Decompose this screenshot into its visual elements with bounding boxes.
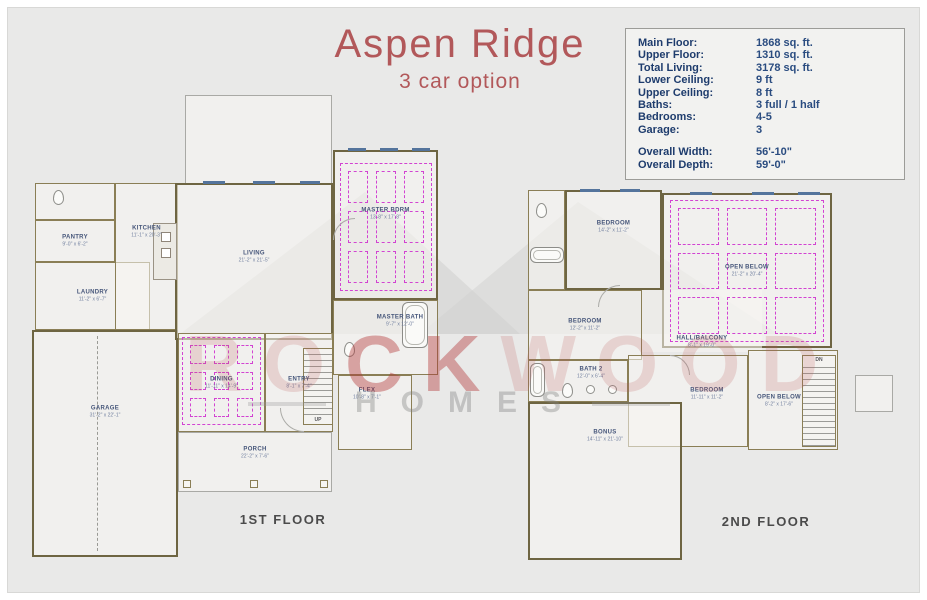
room-name: BEDROOM [597,221,630,227]
room-label: BATH 212'-0" x 6'-4" [577,367,605,380]
spec-row: Garage:3 [638,124,894,136]
ceiling-grid-cell [348,251,368,283]
ceiling-grid-cell [190,398,206,417]
room-name: BEDROOM [690,388,723,394]
floor-plan-sheet: Aspen Ridge 3 car option Main Floor:1868… [0,0,927,600]
ceiling-grid-cell [678,297,719,334]
window-marker [300,181,320,184]
spec-label: Upper Ceiling: [638,87,756,99]
spec-label: Baths: [638,99,756,111]
ceiling-grid-cell [376,171,396,203]
room-dimensions: 10'-8" x 7'-1" [353,395,381,401]
spec-label: Lower Ceiling: [638,74,756,86]
room-pantry: PANTRY9'-0" x 6'-2" [35,220,115,262]
sink-icon [586,385,595,394]
room-name: PORCH [241,447,269,453]
ceiling-grid-cell [214,398,230,417]
room-bonus: BONUS14'-11" x 21'-10" [528,402,682,560]
room-name: FLEX [353,388,381,394]
staircase: UP [303,348,333,425]
spec-value: 1868 sq. ft. [756,37,894,49]
ceiling-grid [340,163,432,291]
spec-value: 56'-10" [756,146,894,158]
spec-value: 59'-0" [756,159,894,171]
spec-value: 9 ft [756,74,894,86]
window-marker [580,189,600,192]
room-name: BEDROOM [568,319,601,325]
window-marker [380,148,398,151]
ceiling-grid-cell [727,253,768,290]
bathtub-icon [530,247,564,263]
room-label: BEDROOM12'-2" x 11'-2" [568,319,601,332]
toilet-icon [562,383,573,398]
room-label: BEDROOM14'-2" x 11'-2" [597,221,630,234]
spec-row: Main Floor:1868 sq. ft. [638,37,894,49]
spec-label: Overall Depth: [638,159,756,171]
ceiling-grid-cell [775,253,816,290]
spec-label: Overall Width: [638,146,756,158]
porch-post [320,480,328,488]
ceiling-grid-cell [214,345,230,364]
window-marker [203,181,225,184]
bathtub-icon [402,302,428,348]
room-dimensions: 11'-11" x 11'-2" [690,395,723,401]
room-label: GARAGE31'-2" x 22'-1" [90,406,121,419]
room-label: BONUS14'-11" x 21'-10" [587,430,623,443]
spec-value [756,136,894,146]
ceiling-grid [182,337,261,425]
room-dimensions: 14'-2" x 11'-2" [597,228,630,234]
spec-value: 1310 sq. ft. [756,49,894,61]
stair-direction-label: UP [304,417,332,423]
room-bedroom-3: BEDROOM12'-2" x 11'-2" [528,290,642,360]
page-subtitle: 3 car option [250,70,670,94]
spec-value: 3178 sq. ft. [756,62,894,74]
ceiling-grid-cell [775,208,816,245]
spec-row: Upper Ceiling:8 ft [638,87,894,99]
ceiling-grid-cell [348,171,368,203]
spec-info-box: Main Floor:1868 sq. ft.Upper Floor:1310 … [625,28,905,180]
spec-row: Bedrooms:4-5 [638,111,894,123]
room-dimensions: 9'-0" x 6'-2" [62,242,88,248]
spec-row: Baths:3 full / 1 half [638,99,894,111]
room-nook [855,375,893,412]
ceiling-grid-cell [404,211,424,243]
room-label: PANTRY9'-0" x 6'-2" [62,235,88,248]
spec-value: 4-5 [756,111,894,123]
spec-value: 3 [756,124,894,136]
stair-direction-label: DN [803,357,835,363]
room-dimensions: 21'-2" x 21'-5" [239,258,270,264]
ceiling-grid-cell [727,208,768,245]
spec-label: Total Living: [638,62,756,74]
ceiling-grid-cell [376,251,396,283]
title-block: Aspen Ridge 3 car option [250,22,670,94]
room-dimensions: 12'-2" x 11'-2" [568,326,601,332]
ceiling-grid-cell [727,297,768,334]
window-marker [690,192,712,195]
room-patio [185,95,332,185]
room-dimensions: 12'-0" x 6'-4" [577,374,605,380]
ceiling-grid-cell [190,345,206,364]
spec-row: Overall Depth:59'-0" [638,159,894,171]
spec-value: 3 full / 1 half [756,99,894,111]
room-powder-bath [35,183,115,220]
room-name: LAUNDRY [77,290,108,296]
ceiling-grid-cell [678,253,719,290]
room-garage: GARAGE31'-2" x 22'-1" [32,330,178,557]
toilet-icon [53,190,64,205]
room-name: OPEN BELOW [757,395,801,401]
room-label: OPEN BELOW8'-2" x 17'-6" [757,395,801,408]
garage-bay-divider [97,336,98,551]
ceiling-grid-cell [237,372,253,391]
room-name: BATH 2 [577,367,605,373]
ceiling-grid-cell [348,211,368,243]
room-label: BEDROOM11'-11" x 11'-2" [690,388,723,401]
sink-icon [608,385,617,394]
room-label: LIVING21'-2" x 21'-5" [239,251,270,264]
room-name: LIVING [239,251,270,257]
page-title: Aspen Ridge [250,22,670,67]
window-marker [253,181,275,184]
room-name: PANTRY [62,235,88,241]
room-dimensions: 8'-1" x 19'-0" [677,343,728,349]
spec-row: Upper Floor:1310 sq. ft. [638,49,894,61]
ceiling-grid-cell [214,372,230,391]
room-dimensions: 11'-2" x 6'-7" [77,297,108,303]
room-name: BONUS [587,430,623,436]
window-marker [752,192,774,195]
second-floor-caption: 2ND FLOOR [696,514,836,529]
window-marker [620,189,640,192]
first-floor-caption: 1ST FLOOR [213,512,353,527]
room-dimensions: 22'-2" x 7'-6" [241,454,269,460]
room-label: LAUNDRY11'-2" x 6'-7" [77,290,108,303]
ceiling-grid-cell [404,171,424,203]
kitchen-island [153,223,177,280]
spec-label [638,136,756,146]
ceiling-grid-cell [237,345,253,364]
spec-value: 8 ft [756,87,894,99]
ceiling-grid-cell [190,372,206,391]
window-marker [348,148,366,151]
room-dimensions: 31'-2" x 22'-1" [90,413,121,419]
spec-row [638,136,894,146]
spec-row: Lower Ceiling:9 ft [638,74,894,86]
toilet-icon [536,203,547,218]
room-bedroom-2: BEDROOM14'-2" x 11'-2" [565,190,662,290]
first-floor-plan: GARAGE31'-2" x 22'-1"PANTRY9'-0" x 6'-2"… [28,90,440,568]
ceiling-grid-cell [237,398,253,417]
window-marker [412,148,430,151]
spec-row: Overall Width:56'-10" [638,146,894,158]
room-flex: FLEX10'-8" x 7'-1" [338,375,412,450]
room-label: FLEX10'-8" x 7'-1" [353,388,381,401]
room-dimensions: 14'-11" x 21'-10" [587,437,623,443]
porch-post [250,480,258,488]
spec-label: Bedrooms: [638,111,756,123]
spec-label: Garage: [638,124,756,136]
room-name: GARAGE [90,406,121,412]
porch-post [183,480,191,488]
ceiling-grid-cell [376,211,396,243]
room-bath-3 [528,190,565,290]
spec-label: Upper Floor: [638,49,756,61]
ceiling-grid [670,200,824,342]
window-marker [798,192,820,195]
spec-row: Total Living:3178 sq. ft. [638,62,894,74]
staircase: DN [802,355,836,447]
ceiling-grid-cell [678,208,719,245]
ceiling-grid-cell [775,297,816,334]
room-living: LIVING21'-2" x 21'-5" [175,183,333,340]
spec-rows: Main Floor:1868 sq. ft.Upper Floor:1310 … [638,37,894,171]
spec-label: Main Floor: [638,37,756,49]
room-dimensions: 8'-2" x 17'-6" [757,402,801,408]
ceiling-grid-cell [404,251,424,283]
room-label: PORCH22'-2" x 7'-6" [241,447,269,460]
toilet-icon [344,342,355,357]
bathtub-icon [530,363,545,397]
